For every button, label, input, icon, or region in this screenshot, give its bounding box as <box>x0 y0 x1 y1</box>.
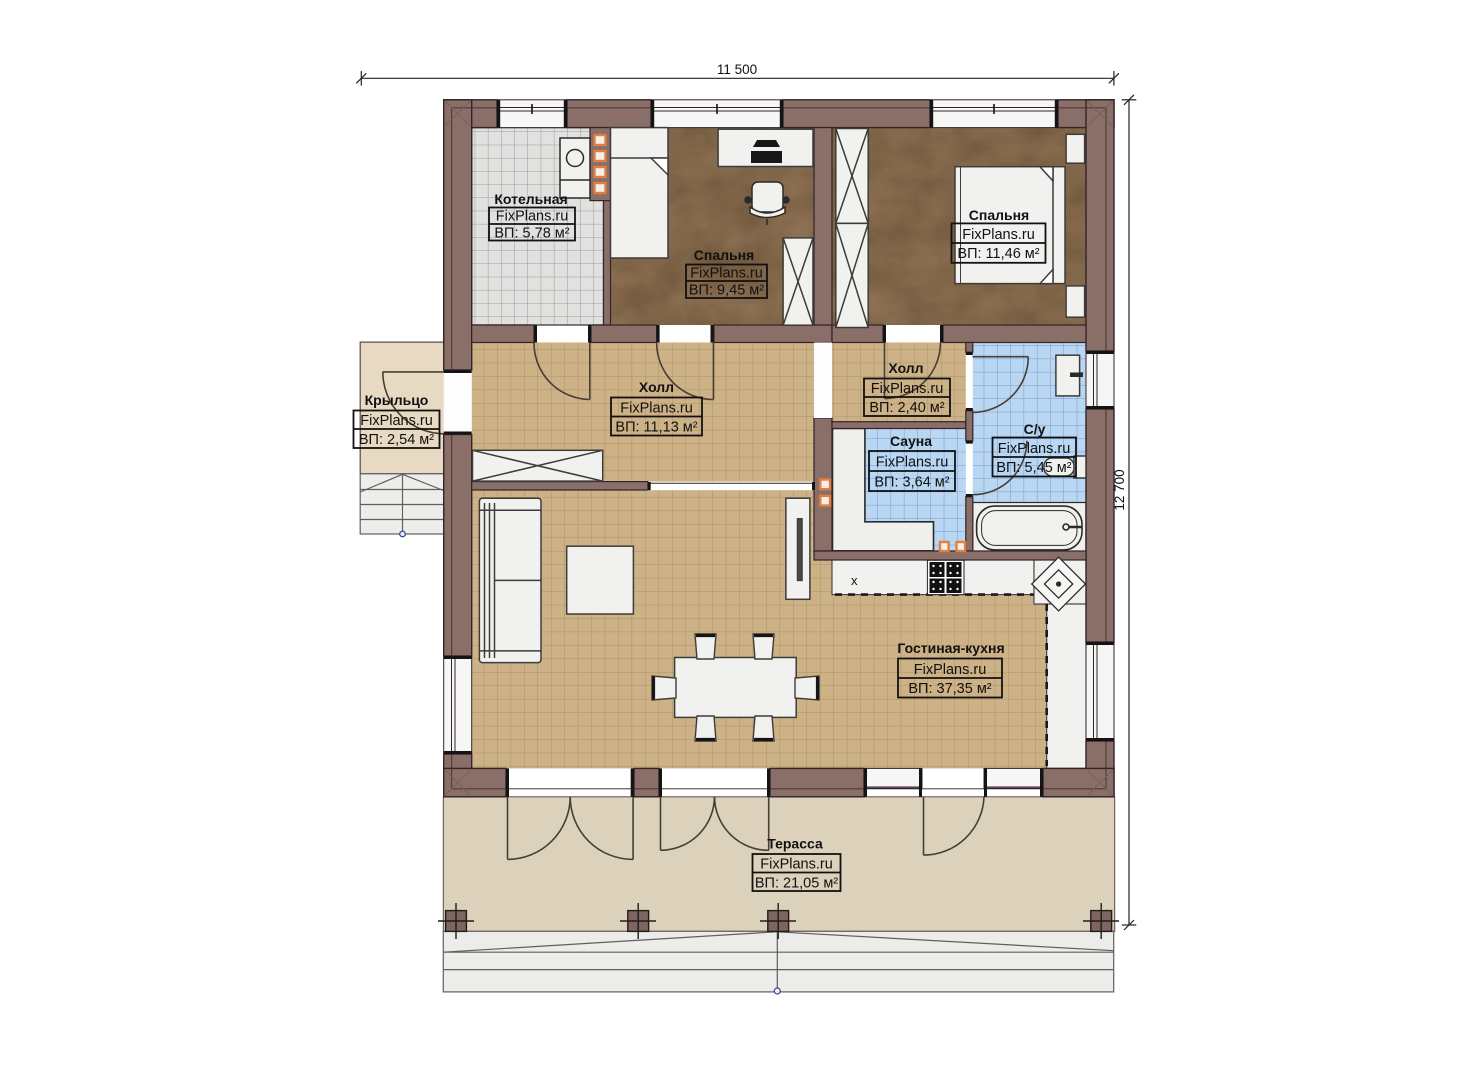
svg-text:ВП: 11,46 м²: ВП: 11,46 м² <box>957 246 1039 262</box>
svg-text:Терасса: Терасса <box>767 836 823 852</box>
svg-text:Холл: Холл <box>888 360 923 376</box>
svg-text:FixPlans.ru: FixPlans.ru <box>620 401 693 417</box>
svg-text:FixPlans.ru: FixPlans.ru <box>690 266 763 282</box>
svg-text:Холл: Холл <box>639 379 674 395</box>
svg-text:x: x <box>851 573 858 588</box>
svg-text:Сауна: Сауна <box>890 433 932 449</box>
svg-text:ВП: 5,45 м²: ВП: 5,45 м² <box>996 460 1071 476</box>
svg-text:Гостиная-кухня: Гостиная-кухня <box>897 640 1004 656</box>
svg-text:FixPlans.ru: FixPlans.ru <box>360 413 433 429</box>
svg-text:Спальня: Спальня <box>969 207 1029 223</box>
svg-text:С/у: С/у <box>1024 421 1046 437</box>
svg-text:ВП: 37,35 м²: ВП: 37,35 м² <box>908 681 991 697</box>
svg-text:FixPlans.ru: FixPlans.ru <box>962 227 1035 243</box>
svg-text:FixPlans.ru: FixPlans.ru <box>998 441 1071 457</box>
svg-text:11 500: 11 500 <box>717 62 757 77</box>
svg-text:Крыльцо: Крыльцо <box>365 392 429 408</box>
svg-text:FixPlans.ru: FixPlans.ru <box>496 209 569 225</box>
svg-text:FixPlans.ru: FixPlans.ru <box>760 857 833 873</box>
svg-text:Котельная: Котельная <box>494 191 567 207</box>
svg-text:FixPlans.ru: FixPlans.ru <box>871 381 944 397</box>
svg-text:ВП: 2,54 м²: ВП: 2,54 м² <box>359 432 434 448</box>
svg-text:ВП: 9,45 м²: ВП: 9,45 м² <box>689 283 764 299</box>
svg-text:ВП: 5,78 м²: ВП: 5,78 м² <box>494 226 569 242</box>
svg-text:ВП: 11,13 м²: ВП: 11,13 м² <box>615 420 697 436</box>
svg-text:ВП: 21,05 м²: ВП: 21,05 м² <box>755 876 838 892</box>
svg-text:ВП: 2,40 м²: ВП: 2,40 м² <box>869 400 944 416</box>
svg-text:12 700: 12 700 <box>1112 469 1127 510</box>
svg-text:FixPlans.ru: FixPlans.ru <box>876 455 949 471</box>
svg-text:Спальня: Спальня <box>694 247 754 263</box>
svg-text:ВП: 3,64 м²: ВП: 3,64 м² <box>874 475 949 491</box>
svg-text:FixPlans.ru: FixPlans.ru <box>914 662 987 678</box>
